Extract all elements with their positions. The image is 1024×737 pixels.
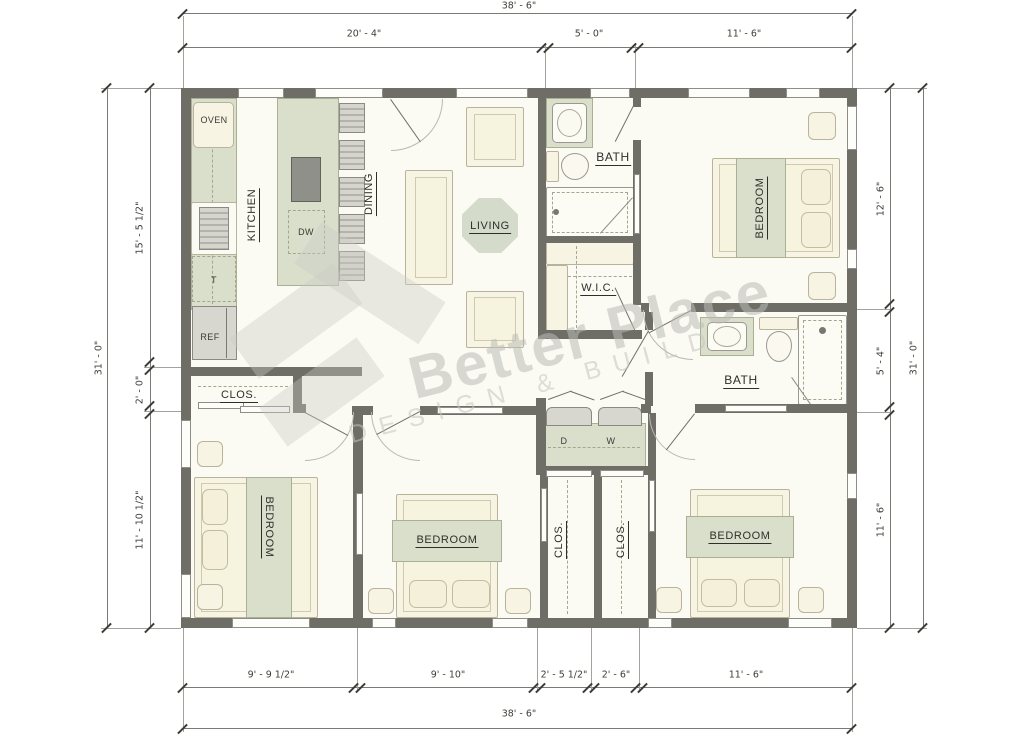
dim-bottom-seg: 2' - 5 1/2"	[541, 670, 588, 681]
nightstand	[656, 587, 682, 613]
dim-left-seg: 15' - 5 1/2"	[135, 202, 146, 255]
armchair-seat	[474, 297, 516, 341]
extension-line	[857, 628, 927, 629]
dim-top-seg: 11' - 6"	[727, 29, 762, 40]
nightstand	[798, 587, 824, 613]
closet-door	[600, 470, 644, 477]
window	[372, 618, 396, 628]
shower-head	[819, 327, 826, 334]
window	[788, 618, 832, 628]
wic-rod-dashed	[568, 276, 632, 277]
window	[847, 473, 857, 499]
sofa-seat	[415, 177, 447, 278]
wall-exterior-right	[847, 98, 857, 618]
window	[590, 88, 630, 98]
nightstand	[368, 588, 394, 614]
wic-shelf	[546, 265, 568, 331]
wall-bedroom-top-bottom	[691, 303, 847, 312]
dryer	[546, 407, 592, 426]
wic-shelf	[546, 241, 634, 265]
washer	[598, 407, 642, 426]
room-label-bedroom-top: BEDROOM	[754, 176, 768, 239]
bar-stool	[339, 251, 365, 281]
closet-door	[546, 470, 592, 477]
wall-kitchen-bedroom	[191, 367, 362, 376]
pocket-door	[649, 480, 655, 532]
bath-top-sink-bowl	[557, 109, 582, 137]
dimension-line	[923, 88, 924, 628]
nightstand	[197, 584, 223, 610]
dimension-line	[183, 728, 853, 729]
shower-head	[553, 209, 559, 215]
window	[232, 618, 310, 628]
dryer-label: D	[561, 436, 568, 446]
wall-wic-bottom	[538, 330, 642, 339]
wic-rod-dashed	[576, 246, 577, 328]
window	[456, 88, 528, 98]
oven-label: OVEN	[200, 115, 227, 125]
pillow	[409, 580, 447, 608]
dimension-line	[890, 88, 891, 628]
laundry-counter	[542, 423, 646, 467]
armchair-seat	[474, 114, 516, 160]
extension-line	[857, 412, 893, 413]
dim-top-seg: 20' - 4"	[347, 29, 382, 40]
dim-bottom-overall: 38' - 6"	[502, 709, 537, 720]
pillow	[452, 580, 490, 608]
window	[492, 618, 528, 628]
sliding-door	[240, 406, 290, 413]
bath-right-sink-bowl	[713, 326, 741, 347]
room-label-closet-hall: CLOS.	[220, 389, 258, 403]
window	[181, 574, 191, 618]
room-label-bedroom-br: BEDROOM	[708, 530, 771, 544]
extension-line	[852, 628, 853, 732]
room-label-living: LIVING	[469, 220, 511, 234]
pillow	[744, 579, 780, 607]
wall-bath-right-left	[645, 372, 653, 406]
dim-right-overall: 31' - 0"	[909, 341, 920, 376]
laundry-dashed	[548, 447, 640, 448]
room-label-closet-left: CLOS.	[553, 521, 567, 559]
room-label-wic: W.I.C.	[580, 282, 616, 296]
extension-line	[857, 88, 927, 89]
extension-line	[101, 628, 181, 629]
window	[238, 88, 284, 98]
room-label-bedroom-bl: BEDROOM	[261, 495, 275, 558]
wall-closet-center	[594, 473, 602, 618]
dim-bottom-seg: 11' - 6"	[729, 670, 764, 681]
pillow	[202, 489, 228, 525]
window	[181, 420, 191, 468]
wall-bath-tub	[546, 236, 634, 243]
wall-hall-closet-right	[293, 376, 302, 407]
extension-line	[857, 309, 893, 310]
dim-top-seg: 5' - 0"	[575, 29, 604, 40]
pocket-door	[634, 174, 640, 234]
dim-left-seg: 11' - 10 1/2"	[135, 491, 146, 550]
dim-right-seg: 11' - 6"	[876, 503, 887, 538]
bar-stool	[339, 103, 365, 133]
window	[648, 618, 672, 628]
window	[315, 88, 383, 98]
dishwasher-label: DW	[298, 227, 314, 237]
pillow	[801, 169, 831, 205]
cooktop-burners	[199, 207, 229, 250]
dim-bottom-seg: 2' - 6"	[602, 670, 631, 681]
refrigerator-label: REF	[200, 332, 219, 342]
nightstand	[808, 272, 836, 300]
dim-left-overall: 31' - 0"	[94, 341, 105, 376]
room-label-bedroom-bm: BEDROOM	[415, 534, 478, 548]
oven	[193, 102, 234, 148]
pillow	[801, 212, 831, 248]
cased-opening	[437, 407, 503, 414]
pocket-door	[356, 493, 363, 555]
bar-stool	[339, 214, 365, 244]
dim-left-seg: 2' - 0"	[135, 376, 146, 405]
dim-top-overall: 38' - 6"	[502, 1, 537, 12]
hall-closet-rod-dashed	[198, 386, 288, 387]
window	[786, 88, 820, 98]
extension-line	[183, 628, 184, 732]
extension-line	[852, 16, 853, 88]
wall-living-bath	[538, 98, 546, 338]
bar-stool	[339, 140, 365, 170]
bar-stool	[339, 177, 365, 207]
dimension-line	[107, 88, 108, 628]
washer-label: W	[607, 436, 616, 446]
dim-bottom-seg: 9' - 9 1/2"	[248, 670, 295, 681]
room-label-bath-top: BATH	[595, 150, 631, 166]
dim-right-seg: 12' - 6"	[876, 182, 887, 217]
room-label-bath-right: BATH	[723, 373, 759, 389]
dimension-line	[183, 13, 853, 14]
nightstand	[197, 441, 223, 467]
refrigerator-door-split	[226, 308, 227, 358]
pillow	[202, 530, 228, 570]
wall-exterior-left	[181, 98, 191, 618]
closet-rod-dashed	[567, 480, 568, 614]
window	[847, 106, 857, 150]
nightstand	[808, 112, 836, 140]
dim-right-seg: 5' - 4"	[876, 347, 887, 376]
pillow	[701, 579, 737, 607]
trash-label: T	[211, 275, 217, 285]
extension-line	[101, 88, 181, 89]
window	[688, 88, 750, 98]
floor-plan: KITCHEN DINING LIVING BATH W.I.C. BATH B…	[0, 0, 1024, 737]
room-label-closet-right: CLOS.	[615, 521, 629, 559]
extension-line	[183, 16, 184, 88]
cased-opening	[725, 405, 787, 412]
room-label-dining: DINING	[363, 172, 377, 216]
dimension-line	[183, 687, 853, 688]
dimension-line	[183, 47, 853, 48]
nightstand	[505, 588, 531, 614]
toilet-tank	[546, 151, 559, 182]
pocket-door	[541, 488, 547, 542]
room-label-kitchen: KITCHEN	[246, 188, 260, 242]
island-sink	[291, 157, 321, 202]
toilet-tank	[759, 317, 798, 330]
wall-bath-right-bottom	[641, 404, 651, 413]
sliding-door	[198, 402, 244, 409]
dim-bottom-seg: 9' - 10"	[431, 670, 466, 681]
window	[847, 249, 857, 269]
